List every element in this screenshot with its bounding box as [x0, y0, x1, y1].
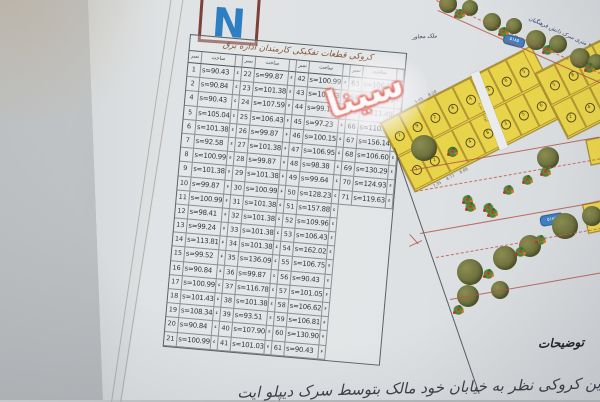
- plant: [503, 185, 514, 195]
- plot-number-badge: 4: [583, 101, 596, 114]
- plot-number-badge: 6: [535, 99, 548, 112]
- plot-number-badge: 2: [428, 111, 441, 124]
- bush: [493, 246, 517, 270]
- plant: [483, 269, 494, 279]
- plant: [487, 208, 498, 218]
- notes-heading: توضیحات: [538, 335, 585, 351]
- plant: [515, 247, 526, 257]
- plant: [447, 147, 458, 157]
- plot-block-left: 7928436512948356 کوچه ۴ متره 7.358.778.8…: [380, 46, 567, 193]
- bush: [457, 259, 483, 285]
- bush: [582, 206, 600, 226]
- adjacent-property-label: ملک مجاور: [412, 33, 437, 40]
- plot-number-badge: 9: [411, 120, 424, 133]
- plot-number-badge: 6: [500, 74, 513, 87]
- plot-number-badge: 7: [393, 129, 406, 142]
- photo-of-cadastral-sketch: { "north": { "label": "N" }, "table": { …: [0, 0, 600, 400]
- plot-number-badge: 5: [548, 78, 561, 91]
- plot-number-badge: 8: [446, 102, 459, 115]
- plot-number-badge: 2: [564, 111, 577, 124]
- plot-number-badge: 4: [464, 93, 477, 106]
- plot-number-badge: 5: [517, 108, 530, 121]
- plot-number-badge: 4: [464, 136, 477, 149]
- plant: [465, 202, 476, 212]
- plant: [453, 305, 464, 315]
- plot-number-badge: 5: [518, 65, 531, 78]
- site-map: ملک مجاور ۲۴ متری سرک دانش فرهنگیان ۵۱۸۵…: [0, 0, 600, 400]
- plant: [522, 175, 533, 185]
- bush: [411, 135, 437, 161]
